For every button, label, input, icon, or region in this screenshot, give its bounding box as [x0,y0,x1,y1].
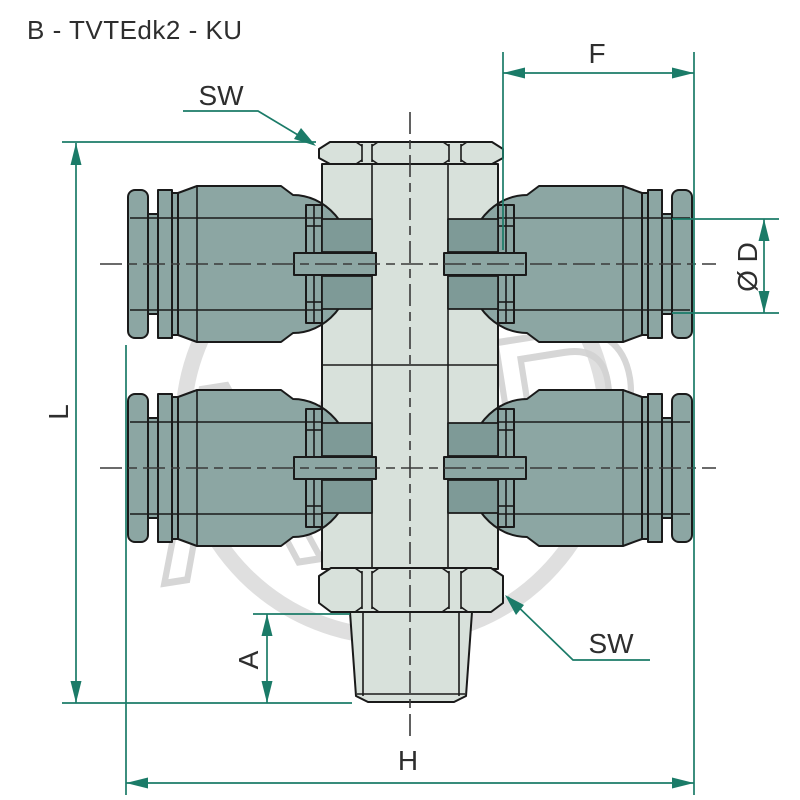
top-hex-nut [319,142,503,164]
dim-label-H: H [398,745,418,776]
leader-sw-top [183,111,313,144]
threaded-stud [350,612,472,702]
dim-label-A: A [233,650,264,669]
fitting-drawing: AGP [0,0,800,800]
page-title: B - TVTEdk2 - KU [27,15,243,45]
bottom-hex-nut [319,568,503,612]
technical-drawing-page: AGP [0,0,800,800]
label-sw-bottom: SW [588,628,634,659]
label-sw-top: SW [198,80,244,111]
dim-label-diameter: Ø D [732,242,763,292]
dim-label-L: L [43,404,74,420]
dim-label-F: F [588,38,605,69]
